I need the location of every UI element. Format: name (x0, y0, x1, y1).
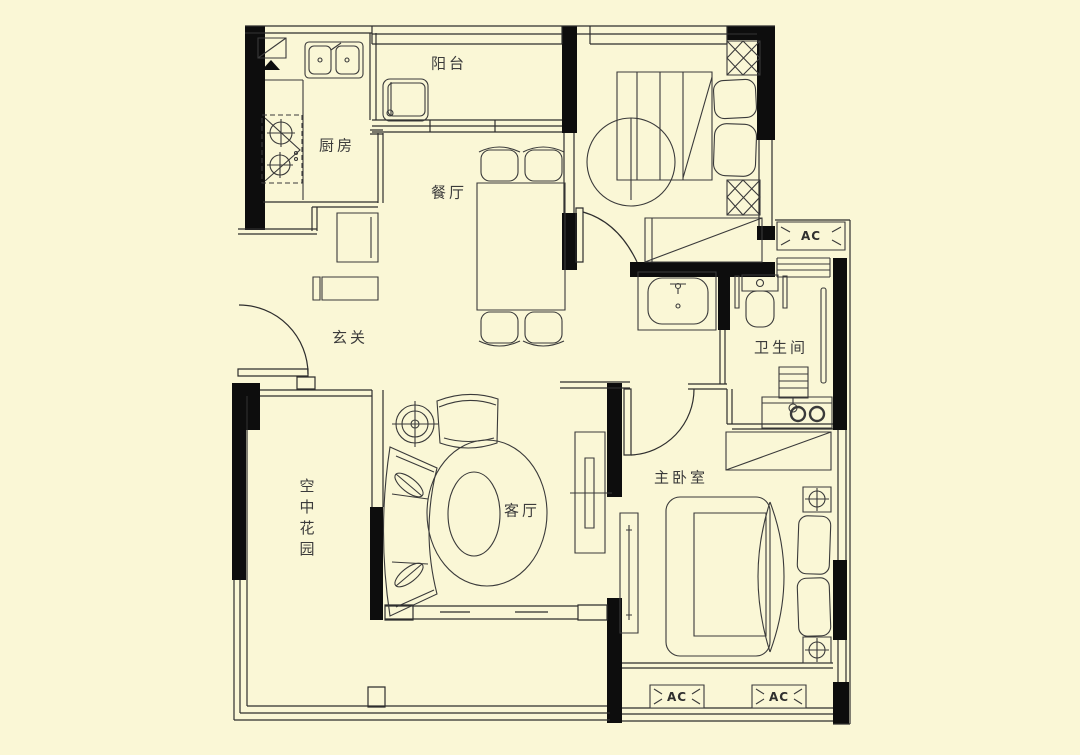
master-nightstand (803, 637, 831, 663)
tv-cabinet (570, 432, 612, 553)
master-dresser (620, 513, 638, 633)
floor-plan-drawing (0, 0, 1080, 755)
label-ac-bottom-right: AC (769, 690, 789, 704)
master-bed (666, 497, 784, 656)
label-dining: 餐厅 (431, 186, 467, 201)
wall-bathroom-right (833, 258, 847, 430)
bedroom-door-swing (583, 212, 637, 262)
water-heater (779, 367, 808, 412)
label-kitchen: 厨房 (319, 139, 355, 154)
balcony-fixtures (383, 79, 428, 121)
kitchen-counter (265, 80, 303, 200)
shoe-cabinet (337, 213, 378, 262)
bedroom-door-leaf (576, 208, 583, 262)
dining-chair (479, 147, 520, 181)
hall-cabinet (322, 277, 378, 300)
master-door-swing (631, 389, 694, 455)
dining-chair (479, 312, 520, 346)
label-master-bedroom: 主卧室 (654, 471, 708, 486)
master-bedroom-furniture (620, 432, 831, 663)
bathroom-sink (638, 272, 716, 330)
wall-balcony-bedroom-divider (562, 26, 577, 133)
bathroom-vanity (762, 397, 832, 428)
washing-machine (383, 79, 428, 121)
master-nightstand (803, 487, 831, 512)
master-wardrobe (726, 432, 831, 470)
doors (238, 208, 694, 455)
bathroom-toilet (735, 275, 787, 327)
bedroom-bed (587, 72, 712, 206)
wall-garden-right-pillar (370, 507, 383, 620)
entry-hall-cabinets (313, 213, 378, 300)
hall-cabinet-side (313, 277, 320, 300)
label-entry-hall: 玄关 (332, 331, 368, 346)
wall-master-right-corner (833, 682, 849, 724)
wall-master-left-upper (607, 383, 622, 497)
master-pillows (797, 515, 831, 636)
floor-plan: 阳台 厨房 餐厅 玄关 卫生间 客厅 主卧室 空中花园 AC AC AC (0, 0, 1080, 755)
label-ac-bottom-left: AC (667, 690, 687, 704)
wall-garden-left (232, 430, 246, 580)
dining-table (477, 183, 565, 310)
kitchen-fixtures (258, 38, 363, 200)
entry-door-leaf (238, 369, 308, 376)
bedroom-pillows (713, 79, 757, 177)
living-room-furniture (384, 394, 613, 616)
label-bathroom: 卫生间 (754, 341, 808, 356)
wall-bedroom-right-stub (757, 226, 775, 240)
label-living-room: 客厅 (504, 504, 540, 519)
wall-dining-bedroom-divider (562, 213, 577, 270)
dining-furniture (477, 147, 565, 346)
wall-garden-left-block (232, 383, 260, 430)
entry-door-swing (239, 305, 308, 374)
label-balcony: 阳台 (431, 57, 467, 72)
kitchen-sink (305, 42, 363, 78)
label-sky-garden: 空中花园 (299, 478, 314, 562)
kitchen-stove (262, 115, 302, 183)
towel-bar (821, 288, 826, 383)
potted-plant (392, 401, 438, 447)
master-door-leaf (624, 389, 631, 455)
bedroom-nightstand (727, 180, 760, 215)
label-ac-top-right: AC (801, 229, 821, 243)
bedroom-nightstand (727, 41, 760, 75)
dining-chair (523, 147, 564, 181)
wall-master-right-mid (833, 560, 847, 640)
bedroom-wardrobe (645, 218, 762, 262)
dining-chair (523, 312, 564, 346)
wall-bathroom-divider (718, 262, 730, 330)
